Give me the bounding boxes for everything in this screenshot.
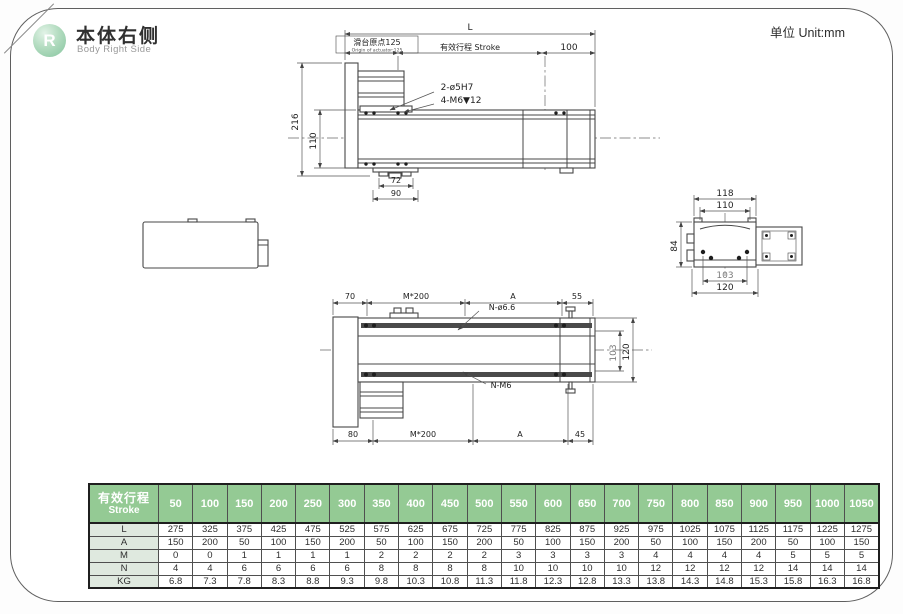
table-cell: 200 (330, 536, 364, 549)
stroke-column-header: 600 (536, 484, 570, 523)
table-cell: 150 (159, 536, 193, 549)
table-cell: 50 (501, 536, 535, 549)
table-cell: 6 (296, 562, 330, 575)
table-cell: 2 (399, 549, 433, 562)
bottom-view-drawing: 70 M*200 A 55 80 M*200 A 45 103 120 N-ø6… (320, 292, 652, 445)
table-cell: 10 (501, 562, 535, 575)
table-cell: 4 (707, 549, 741, 562)
table-cell: 1025 (673, 523, 707, 536)
table-cell: 1175 (776, 523, 810, 536)
table-cell: 7.3 (193, 575, 227, 588)
dim-80: 80 (348, 430, 358, 439)
table-cell: 5 (844, 549, 879, 562)
dim-100: 100 (560, 43, 577, 53)
table-row: N44666688881010101012121212141414 (89, 562, 879, 575)
table-cell: 8.3 (261, 575, 295, 588)
table-cell: 3 (604, 549, 638, 562)
stroke-column-header: 500 (467, 484, 501, 523)
row-label-l: L (89, 523, 159, 536)
table-cell: 12 (673, 562, 707, 575)
dim-stroke-label: 有效行程 Stroke (440, 42, 500, 52)
table-cell: 325 (193, 523, 227, 536)
table-cell: 4 (193, 562, 227, 575)
stroke-column-header: 300 (330, 484, 364, 523)
dim-origin-en: Origin of actuator:125 (352, 48, 403, 54)
table-cell: 15.8 (776, 575, 810, 588)
dim-A-bottom: A (517, 430, 523, 439)
table-cell: 14.3 (673, 575, 707, 588)
table-cell: 14 (776, 562, 810, 575)
table-cell: 5 (776, 549, 810, 562)
table-cell: 100 (536, 536, 570, 549)
table-cell: 9.3 (330, 575, 364, 588)
table-cell: 50 (364, 536, 398, 549)
dim-110-section: 110 (716, 201, 733, 211)
table-cell: 3 (536, 549, 570, 562)
table-cell: 425 (261, 523, 295, 536)
table-cell: 975 (639, 523, 673, 536)
section-badge-letter: R (43, 31, 55, 51)
table-cell: 2 (433, 549, 467, 562)
table-cell: 4 (673, 549, 707, 562)
row-label-n: N (89, 562, 159, 575)
callout-N-o66: N-ø6.6 (489, 303, 516, 312)
unit-label: 单位 Unit:mm (770, 22, 845, 41)
table-cell: 1 (261, 549, 295, 562)
table-cell: 9.8 (364, 575, 398, 588)
stroke-column-header: 350 (364, 484, 398, 523)
stroke-column-header: 150 (227, 484, 261, 523)
row-label-kg: KG (89, 575, 159, 588)
table-cell: 0 (159, 549, 193, 562)
table-cell: 8 (399, 562, 433, 575)
table-cell: 6.8 (159, 575, 193, 588)
table-cell: 200 (604, 536, 638, 549)
table-cell: 775 (501, 523, 535, 536)
table-cell: 50 (227, 536, 261, 549)
table-cell: 1075 (707, 523, 741, 536)
table-cell: 12 (639, 562, 673, 575)
stroke-column-header: 50 (159, 484, 193, 523)
stroke-column-header: 700 (604, 484, 638, 523)
stroke-column-header: 900 (742, 484, 776, 523)
table-cell: 14 (810, 562, 844, 575)
stroke-column-header: 100 (193, 484, 227, 523)
stroke-column-header: 950 (776, 484, 810, 523)
table-cell: 10 (536, 562, 570, 575)
table-row: KG6.87.37.88.38.89.39.810.310.811.311.81… (89, 575, 879, 588)
table-cell: 150 (433, 536, 467, 549)
table-cell: 5 (810, 549, 844, 562)
table-cell: 525 (330, 523, 364, 536)
table-cell: 200 (742, 536, 776, 549)
dim-110-side: 110 (309, 132, 319, 149)
table-cell: 875 (570, 523, 604, 536)
dim-118: 118 (716, 189, 733, 199)
table-cell: 50 (776, 536, 810, 549)
table-cell: 12 (742, 562, 776, 575)
table-header-stroke-en: Stroke (90, 505, 158, 517)
table-cell: 10.3 (399, 575, 433, 588)
stroke-column-header: 1050 (844, 484, 879, 523)
dim-origin-cn: 滑台原点125 (353, 37, 400, 47)
callout-4-M6-12: 4-M6▼12 (441, 96, 482, 106)
stroke-column-header: 400 (399, 484, 433, 523)
table-cell: 925 (604, 523, 638, 536)
end-view-drawing (143, 219, 268, 268)
dim-m200-top: M*200 (403, 292, 429, 301)
table-cell: 4 (742, 549, 776, 562)
table-cell: 6 (261, 562, 295, 575)
row-label-m: M (89, 549, 159, 562)
section-badge: R (33, 24, 66, 57)
table-cell: 3 (570, 549, 604, 562)
dim-55: 55 (572, 292, 582, 301)
table-row: M001111222233334444555 (89, 549, 879, 562)
dim-120-topview: 120 (622, 343, 632, 360)
stroke-column-header: 200 (261, 484, 295, 523)
table-cell: 100 (810, 536, 844, 549)
table-cell: 1 (296, 549, 330, 562)
callout-N-M6: N-M6 (491, 381, 512, 390)
page-subtitle: Body Right Side (77, 44, 151, 55)
table-cell: 4 (639, 549, 673, 562)
dim-L: L (467, 23, 472, 33)
stroke-column-header: 750 (639, 484, 673, 523)
table-cell: 7.8 (227, 575, 261, 588)
table-cell: 375 (227, 523, 261, 536)
stroke-column-header: 250 (296, 484, 330, 523)
table-cell: 14 (844, 562, 879, 575)
table-cell: 150 (296, 536, 330, 549)
table-cell: 6 (227, 562, 261, 575)
dim-A-top: A (510, 292, 516, 301)
side-view-drawing: L 滑台原点125 Origin of actuator:125 有效行程 St… (288, 23, 660, 202)
stroke-column-header: 850 (707, 484, 741, 523)
table-cell: 100 (673, 536, 707, 549)
table-cell: 150 (844, 536, 879, 549)
stroke-column-header: 800 (673, 484, 707, 523)
table-cell: 11.3 (467, 575, 501, 588)
dim-90: 90 (391, 189, 401, 198)
table-cell: 1225 (810, 523, 844, 536)
table-header-stroke-cn: 有效行程 (90, 491, 158, 505)
table-cell: 10.8 (433, 575, 467, 588)
table-cell: 13.8 (639, 575, 673, 588)
table-cell: 150 (707, 536, 741, 549)
table-cell: 14.8 (707, 575, 741, 588)
table-cell: 6 (330, 562, 364, 575)
section-view-drawing: 118 110 84 103 120 (670, 189, 802, 297)
dim-120-section: 120 (716, 283, 733, 293)
table-cell: 675 (433, 523, 467, 536)
dim-45: 45 (575, 430, 585, 439)
dim-70: 70 (345, 292, 355, 301)
table-cell: 1 (227, 549, 261, 562)
table-cell: 8 (467, 562, 501, 575)
table-cell: 10 (570, 562, 604, 575)
table-cell: 11.8 (501, 575, 535, 588)
table-cell: 1125 (742, 523, 776, 536)
table-cell: 13.3 (604, 575, 638, 588)
table-cell: 15.3 (742, 575, 776, 588)
table-cell: 200 (467, 536, 501, 549)
table-cell: 16.3 (810, 575, 844, 588)
table-cell: 100 (261, 536, 295, 549)
dim-103-section: 103 (716, 271, 733, 281)
stroke-column-header: 1000 (810, 484, 844, 523)
table-row: L275325375425475525575625675725775825875… (89, 523, 879, 536)
table-cell: 3 (501, 549, 535, 562)
dim-m200-bottom: M*200 (410, 430, 436, 439)
table-cell: 625 (399, 523, 433, 536)
spec-table-container: 有效行程Stroke501001502002503003504004505005… (88, 483, 880, 589)
stroke-column-header: 550 (501, 484, 535, 523)
table-cell: 200 (193, 536, 227, 549)
dim-84: 84 (670, 240, 680, 252)
stroke-spec-table: 有效行程Stroke501001502002503003504004505005… (88, 483, 880, 589)
table-cell: 275 (159, 523, 193, 536)
table-cell: 50 (639, 536, 673, 549)
table-cell: 2 (364, 549, 398, 562)
table-cell: 12.3 (536, 575, 570, 588)
table-cell: 16.8 (844, 575, 879, 588)
table-cell: 100 (399, 536, 433, 549)
table-cell: 2 (467, 549, 501, 562)
table-cell: 150 (570, 536, 604, 549)
dim-103-topview: 103 (609, 344, 619, 361)
table-cell: 1 (330, 549, 364, 562)
callout-2-o5H7: 2-ø5H7 (441, 83, 474, 93)
table-cell: 475 (296, 523, 330, 536)
table-cell: 0 (193, 549, 227, 562)
table-cell: 1275 (844, 523, 879, 536)
table-cell: 825 (536, 523, 570, 536)
table-cell: 8 (364, 562, 398, 575)
dim-72: 72 (391, 176, 401, 185)
table-cell: 10 (604, 562, 638, 575)
table-cell: 725 (467, 523, 501, 536)
table-cell: 4 (159, 562, 193, 575)
table-cell: 12.8 (570, 575, 604, 588)
dim-216: 216 (291, 113, 301, 130)
stroke-column-header: 450 (433, 484, 467, 523)
table-cell: 8 (433, 562, 467, 575)
table-cell: 575 (364, 523, 398, 536)
table-row: A150200501001502005010015020050100150200… (89, 536, 879, 549)
table-cell: 8.8 (296, 575, 330, 588)
stroke-column-header: 650 (570, 484, 604, 523)
table-cell: 12 (707, 562, 741, 575)
row-label-a: A (89, 536, 159, 549)
table-header-stroke: 有效行程Stroke (89, 484, 159, 523)
